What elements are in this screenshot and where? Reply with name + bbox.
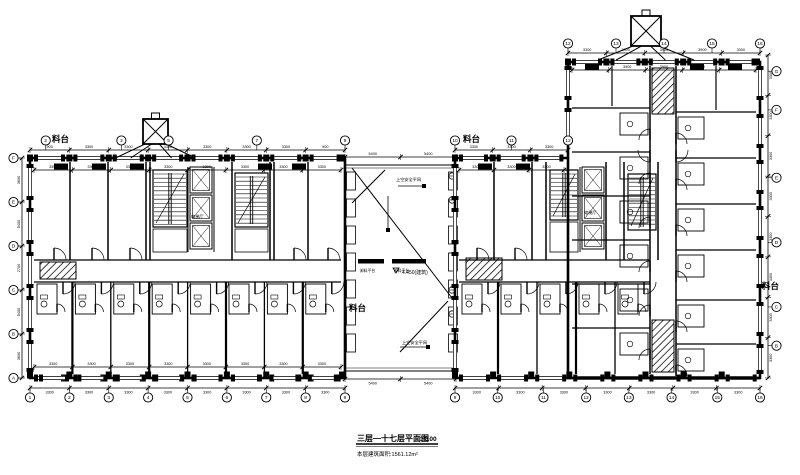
dim-value: 5400 [369, 152, 377, 156]
dim-value: 3300 [202, 362, 210, 366]
cistern-icon [233, 295, 240, 299]
toilet-icon [271, 301, 277, 307]
column-block [180, 375, 184, 382]
grid-bubble-label: B [775, 343, 778, 349]
cistern-icon [194, 295, 201, 299]
column-block [27, 296, 34, 300]
grid-bubble-label: 13 [626, 395, 632, 401]
grid-bubble-label: C [12, 288, 16, 294]
grid-bubble-label: 2 [68, 395, 71, 401]
column-block [219, 155, 223, 162]
column-block [757, 206, 764, 210]
grid-bubble-label: 12 [565, 138, 571, 144]
dim-value: 3600 [17, 176, 21, 184]
grid-bubble-label: 5 [186, 395, 189, 401]
grid-bubble-label: 3 [120, 138, 123, 144]
column-block [295, 375, 299, 382]
column-block [649, 59, 653, 66]
door-arc [178, 282, 190, 294]
hatched-shaft [466, 258, 502, 280]
column-block [452, 240, 459, 244]
column-block [757, 114, 764, 118]
grid-bubble-label: 8 [304, 395, 307, 401]
column-block [757, 370, 764, 374]
column-block [452, 368, 459, 372]
closet-block [516, 164, 530, 170]
note-elevator-left: 电梯厅 [191, 213, 204, 220]
door-arc [328, 248, 340, 260]
column-block [757, 254, 764, 258]
column-block [77, 375, 81, 382]
toilet-icon [685, 171, 691, 177]
dim-value: 3300 [242, 145, 250, 149]
column-block [757, 332, 764, 336]
column-block [179, 155, 183, 162]
column-block [27, 240, 34, 244]
column-block [757, 190, 764, 194]
toilet-icon [627, 341, 633, 347]
column-block [459, 375, 463, 382]
dim-value: 3300 [164, 165, 172, 169]
dim-value: 3900 [697, 65, 705, 69]
cistern-icon [505, 295, 512, 299]
column-block [636, 59, 640, 66]
column-block [310, 155, 314, 162]
column-block [27, 328, 34, 332]
grid-bubble-label: 9 [454, 395, 457, 401]
crane-top [152, 113, 160, 119]
toilet-icon [627, 253, 633, 259]
column-block [27, 372, 33, 379]
dim-value: 3300 [507, 165, 515, 169]
column-block [452, 328, 459, 332]
dim-value: 3900 [660, 65, 668, 69]
column-block [528, 372, 534, 379]
grid-bubble-label: 13 [613, 41, 619, 47]
column-block [142, 375, 146, 382]
column-block [231, 155, 235, 162]
toilet-icon [627, 297, 633, 303]
hatched-shaft [652, 320, 674, 372]
column-block [66, 155, 72, 162]
dim-value: 3300 [282, 391, 290, 395]
stair-lobby [153, 229, 187, 252]
door-arc [294, 248, 306, 260]
dim-value: 5400 [17, 220, 21, 228]
door-arc [521, 304, 529, 312]
dim-value: 3300 [124, 145, 132, 149]
cistern-icon [309, 295, 316, 299]
column-block [27, 252, 34, 256]
arrow-head [386, 228, 390, 232]
cistern-icon [271, 295, 278, 299]
column-block [27, 155, 33, 162]
door-arc [134, 304, 142, 312]
column-block [257, 375, 261, 382]
dim-value: 3300 [202, 165, 210, 169]
grid-bubble-label: 12 [565, 41, 571, 47]
column-block [145, 155, 151, 162]
dim-value: 3300 [241, 165, 249, 169]
column-block [27, 340, 34, 344]
end-wall-window [347, 280, 356, 298]
toilet-icon [583, 301, 589, 307]
dim-value: 3300 [542, 165, 550, 169]
door-arc [172, 304, 180, 312]
column-block [65, 375, 69, 382]
column-block [34, 155, 38, 162]
column-block [675, 59, 679, 66]
grid-bubble-label: 16 [757, 41, 763, 47]
door-arc [287, 304, 295, 312]
column-block [27, 284, 34, 288]
toilet-icon [685, 263, 691, 269]
grid-bubble-label: 7 [265, 395, 268, 401]
column-block [497, 155, 501, 162]
grid-bubble-label: 9 [344, 395, 347, 401]
dim-value: 3300 [124, 391, 132, 395]
column-block [757, 344, 764, 348]
dim-value: 3300 [690, 391, 698, 395]
dim-value: 3300 [769, 152, 773, 160]
dim-value: 3300 [164, 362, 172, 366]
dim-value: 5400 [424, 152, 432, 156]
dim-value: 900 [322, 145, 328, 149]
column-block [484, 155, 488, 162]
dim-value: 3300 [318, 165, 326, 169]
column-block [219, 375, 223, 382]
tower-crane-icon [116, 113, 196, 158]
drawing-sheet: 3300330033003300330033003300330033003300… [0, 0, 800, 475]
column-block [106, 155, 112, 162]
column-block [452, 296, 459, 300]
column-block [100, 155, 104, 162]
column-block [565, 96, 572, 100]
grid-bubble-label: 7 [255, 138, 258, 144]
grid-bubble-label: 9 [344, 138, 347, 144]
toilet-icon [195, 301, 201, 307]
toilet-icon [79, 301, 85, 307]
note-safety-net-bottom: 上空安全平网 [402, 339, 427, 346]
dim-value: 3300 [472, 165, 480, 169]
end-wall-window [347, 334, 356, 352]
toilet-icon [310, 301, 316, 307]
column-block [559, 155, 563, 162]
column-block [565, 59, 571, 66]
note-unload-left: 卸料平台 [360, 268, 375, 273]
annotation-bar [358, 259, 384, 264]
grid-bubble-label: G [775, 69, 779, 75]
grid-bubble-label: 11 [541, 395, 546, 401]
grid-bubble-label: F [12, 156, 15, 162]
door-arc [676, 150, 688, 162]
column-block [27, 208, 34, 212]
dim-value: 3300 [126, 165, 134, 169]
door-arc [515, 248, 527, 260]
door-arc [54, 248, 66, 260]
grid-bubble-label: 15 [709, 41, 715, 47]
dim-value: 3600 [17, 352, 21, 360]
toilet-icon [685, 313, 691, 319]
dim-value: 3900 [623, 65, 631, 69]
grid-bubble-label: 5 [167, 138, 170, 144]
dim-value: 3900 [698, 48, 706, 52]
dim-value: 3300 [473, 391, 481, 395]
toilet-icon [41, 301, 47, 307]
dim-value: 3300 [318, 362, 326, 366]
toilet-icon [627, 121, 633, 127]
door-arc [57, 304, 65, 312]
grid-bubble-label: 2 [44, 138, 47, 144]
drawing-layer: 3300330033003300330033003300330033003300… [9, 10, 781, 402]
dim-value: 3300 [242, 391, 250, 395]
cistern-icon [117, 295, 124, 299]
grid-bubble-label: E [775, 175, 778, 181]
arrow-head [422, 184, 426, 188]
column-block [719, 59, 725, 66]
column-block [524, 375, 528, 382]
column-block [452, 208, 459, 212]
door-arc [92, 248, 104, 260]
dim-value: 3300 [164, 391, 172, 395]
column-block [527, 155, 533, 162]
dim-value: 3300 [470, 145, 478, 149]
grid-bubble-label: D [775, 240, 779, 246]
dim-value: 3300 [321, 391, 329, 395]
door-arc [599, 304, 607, 312]
column-block [334, 375, 338, 382]
toilet-icon [505, 301, 511, 307]
dim-value: 5400 [369, 382, 377, 386]
dim-value: 3300 [203, 391, 211, 395]
bathroom [620, 113, 648, 135]
column-block [263, 155, 269, 162]
toilet-icon [622, 301, 628, 307]
dim-value: 3300 [737, 48, 745, 52]
dim-value: 3300 [49, 362, 57, 366]
drawing-title: 三层—十七层平面图 [357, 433, 429, 443]
hatched-shaft [40, 262, 76, 279]
cistern-icon [156, 295, 163, 299]
door-arc [482, 304, 490, 312]
dim-value: 3300 [241, 362, 249, 366]
dim-value: 3300 [85, 391, 93, 395]
dim-value: 3300 [733, 65, 741, 69]
dim-value: 900 [47, 145, 53, 149]
column-block [490, 155, 496, 162]
grid-bubble-label: 12 [583, 395, 589, 401]
column-block [270, 155, 274, 162]
toilet-icon [685, 217, 691, 223]
door-arc [95, 304, 103, 312]
annotation-bar [392, 259, 426, 264]
column-block [308, 375, 312, 382]
column-block [116, 375, 120, 382]
column-block [522, 155, 526, 162]
cistern-icon [544, 295, 551, 299]
column-block [303, 155, 309, 162]
column-block [757, 302, 764, 306]
column-block [757, 144, 764, 148]
end-wall-window [347, 226, 356, 244]
column-block [642, 59, 648, 66]
column-block [610, 59, 614, 66]
dim-value: 3300 [87, 362, 95, 366]
drawing-scale: 1:100 [420, 436, 437, 443]
column-block [452, 372, 458, 379]
dim-value: 3300 [769, 354, 773, 362]
column-block [339, 372, 345, 379]
grid-bubble-label: 11 [509, 138, 514, 144]
dim-value: 3300 [282, 145, 290, 149]
dim-value: 3300 [45, 391, 53, 395]
column-block [269, 375, 273, 382]
column-block [757, 236, 764, 240]
column-block [193, 375, 197, 382]
column-block [565, 66, 572, 70]
toilet-icon [685, 125, 691, 131]
door-arc [101, 282, 113, 294]
column-block [713, 59, 717, 66]
grid-bubble-label: 14 [669, 395, 675, 401]
column-block [27, 164, 34, 168]
column-block [535, 375, 539, 382]
platform-label-center: 料台 [349, 303, 367, 313]
cistern-icon [41, 295, 48, 299]
toilet-icon [233, 301, 239, 307]
dim-value: 3300 [545, 145, 553, 149]
column-block [486, 375, 490, 382]
hatched-shaft [652, 68, 674, 114]
grid-bubble-label: C [775, 305, 779, 311]
column-block [73, 155, 77, 162]
dim-value: 5400 [424, 382, 432, 386]
column-block [452, 284, 459, 288]
dim-value: 3300 [583, 48, 591, 52]
platform-label-right: 料台 [762, 281, 780, 291]
dim-value: 3300 [516, 391, 524, 395]
grid-bubble-label: 15 [715, 395, 721, 401]
grid-bubble-label: 4 [147, 395, 150, 401]
door-arc [326, 304, 334, 312]
cistern-icon [583, 295, 590, 299]
column-block [152, 155, 156, 162]
column-block [534, 155, 538, 162]
toilet-icon [118, 301, 124, 307]
column-block [103, 375, 107, 382]
column-block [61, 155, 65, 162]
platform-label-top-right: 料台 [463, 134, 481, 144]
stair-lobby [235, 229, 268, 252]
end-wall-window [347, 199, 356, 217]
column-block [680, 59, 686, 66]
column-block [603, 59, 609, 66]
toilet-icon [544, 301, 550, 307]
column-block [757, 160, 764, 164]
column-block [39, 375, 43, 382]
end-wall-window [347, 172, 356, 190]
column-block [757, 96, 764, 100]
dim-value: 3300 [586, 65, 594, 69]
stair-arrow [238, 177, 265, 223]
dim-value: 3300 [279, 165, 287, 169]
column-block [27, 196, 34, 200]
toilet-icon [156, 301, 162, 307]
grid-bubble-label: F [775, 108, 778, 114]
dim-value: 3300 [560, 391, 568, 395]
dim-value: 3300 [769, 313, 773, 321]
dim-value: 3300 [769, 192, 773, 200]
bathroom [620, 333, 648, 355]
column-block [140, 155, 144, 162]
door-arc [130, 248, 142, 260]
grid-bubble-label: 16 [757, 395, 763, 401]
dim-value: 3300 [279, 362, 287, 366]
platform-label-top-left: 料台 [52, 134, 70, 144]
grid-bubble-label: 1 [29, 395, 32, 401]
column-block [452, 164, 459, 168]
grid-bubble-label: 10 [452, 138, 458, 144]
column-block [154, 375, 158, 382]
end-wall-window [347, 253, 356, 271]
grid-bubble-label: 3 [107, 395, 110, 401]
grid-bubble-label: E [12, 200, 15, 206]
door-arc [211, 304, 219, 312]
arrow-head [426, 345, 430, 349]
note-safety-net-top: 上空安全平网 [396, 176, 421, 183]
dim-value: 3300 [87, 165, 95, 169]
cistern-icon [466, 295, 473, 299]
column-block [73, 375, 77, 382]
area-note: 本层建筑面积:1561.12m² [357, 450, 418, 458]
door-arc [332, 282, 344, 294]
column-block [452, 155, 458, 162]
dim-value: 3300 [126, 362, 134, 366]
column-block [497, 375, 501, 382]
column-block [490, 372, 496, 379]
dim-value: 3900 [621, 48, 629, 52]
dim-value: 3300 [647, 391, 655, 395]
column-block [562, 375, 566, 382]
dim-value: 2700 [17, 264, 21, 272]
door-arc [255, 282, 267, 294]
column-block [34, 375, 38, 382]
cistern-icon [79, 295, 86, 299]
dim-value: 3300 [203, 145, 211, 149]
toilet-icon [685, 357, 691, 363]
door-arc [249, 304, 257, 312]
toilet-icon [627, 165, 633, 171]
grid-bubble-label: B [12, 332, 15, 338]
dim-value: 5400 [17, 308, 21, 316]
column-block [754, 59, 760, 66]
column-block [231, 375, 235, 382]
dim-value: 3300 [603, 391, 611, 395]
stair-lobby [550, 222, 578, 252]
grid-bubble-label: D [12, 244, 16, 250]
column-block [224, 155, 230, 162]
note-elevator-right: 电梯厅 [584, 209, 597, 216]
floor-plan-canvas: 3300330033003300330033003300330033003300… [0, 0, 800, 475]
column-block [452, 196, 459, 200]
dim-value: 3300 [85, 145, 93, 149]
stair-arrow [156, 174, 184, 223]
column-block [459, 155, 463, 162]
grid-bubble-label: 10 [495, 395, 501, 401]
column-block [258, 155, 262, 162]
column-block [565, 108, 572, 112]
column-block [452, 340, 459, 344]
